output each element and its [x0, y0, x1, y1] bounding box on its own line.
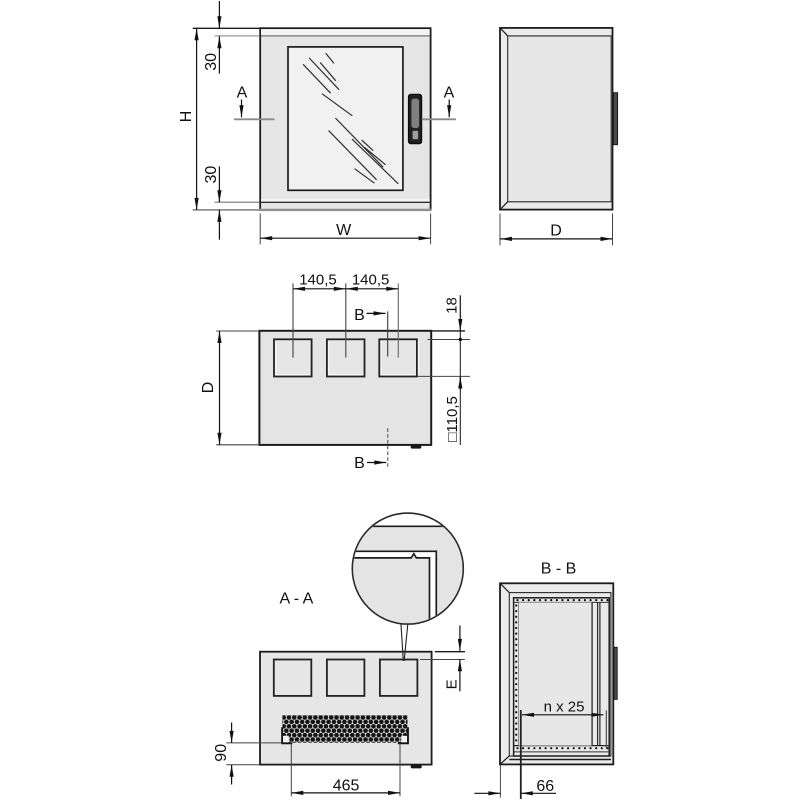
svg-text:30: 30	[203, 166, 220, 184]
svg-text:□110,5: □110,5	[444, 396, 461, 441]
svg-text:A: A	[237, 84, 248, 101]
svg-text:B - B: B - B	[541, 560, 577, 577]
svg-text:30: 30	[203, 53, 220, 71]
svg-text:B: B	[354, 455, 365, 472]
svg-text:W: W	[336, 222, 352, 239]
svg-text:A: A	[444, 84, 455, 101]
svg-text:A - A: A - A	[280, 591, 314, 608]
svg-text:140,5: 140,5	[352, 272, 390, 289]
svg-text:D: D	[550, 222, 562, 239]
svg-text:B: B	[354, 307, 365, 324]
svg-text:n x 25: n x 25	[544, 699, 585, 716]
svg-text:90: 90	[213, 744, 230, 762]
svg-text:H: H	[178, 111, 195, 123]
svg-text:66: 66	[536, 778, 554, 795]
svg-text:18: 18	[444, 297, 461, 314]
svg-text:E: E	[444, 679, 461, 689]
svg-text:D: D	[200, 382, 217, 394]
svg-text:140,5: 140,5	[299, 272, 337, 289]
svg-text:465: 465	[333, 777, 360, 794]
